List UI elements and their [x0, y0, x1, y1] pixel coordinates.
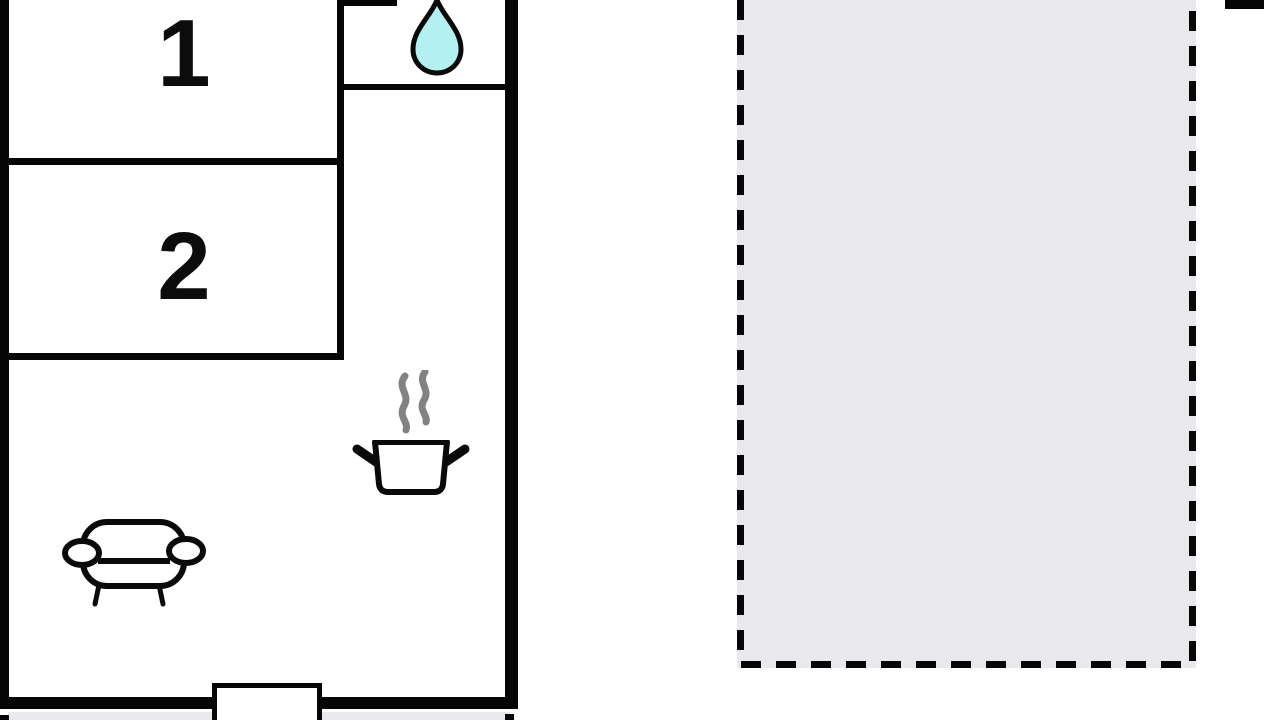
sofa-icon: [55, 515, 215, 610]
bathroom-wall-bottom: [337, 84, 518, 90]
exterior-wall-right: [505, 0, 518, 709]
cooking-pot-icon: [350, 440, 475, 500]
room-2-label: 2: [129, 219, 239, 315]
terrace: [737, 0, 1196, 668]
interior-wall-room1-room2: [0, 158, 344, 165]
interior-wall-below-room2: [0, 353, 344, 360]
interior-wall-hall-vertical: [337, 0, 344, 360]
floor-plan-canvas: 1 2: [0, 0, 1280, 720]
lower-terrace-dash-left: [0, 715, 9, 720]
lower-terrace-dash-right: [505, 714, 514, 720]
bathroom-wall-top-fragment: [337, 0, 397, 6]
terrace-dashed-border: [737, 0, 1196, 668]
apartment-floor-plan: 1 2: [0, 0, 518, 720]
room-1-label: 1: [129, 6, 239, 102]
entrance-door: [212, 683, 322, 720]
water-drop-icon: [407, 0, 467, 76]
steam-icon: [350, 370, 475, 440]
wall-fragment-top-right: [1225, 0, 1264, 9]
